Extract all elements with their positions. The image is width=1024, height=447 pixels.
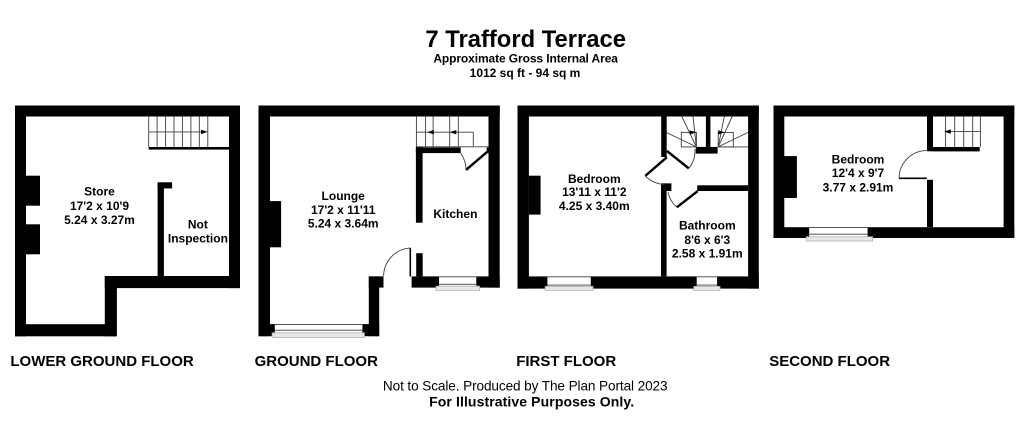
svg-text:Lounge: Lounge [322,189,366,203]
svg-text:17'2 x 10'9: 17'2 x 10'9 [70,199,129,213]
svg-text:Not to Scale. Produced by The: Not to Scale. Produced by The Plan Porta… [383,379,668,394]
svg-text:For Illustrative Purposes Only: For Illustrative Purposes Only. [429,393,634,409]
svg-text:5.24 x 3.64m: 5.24 x 3.64m [308,217,379,231]
svg-text:4.25 x 3.40m: 4.25 x 3.40m [559,199,630,213]
svg-text:SECOND FLOOR: SECOND FLOOR [769,353,890,370]
svg-text:12'4 x 9'7: 12'4 x 9'7 [832,166,885,180]
svg-text:13'11 x 11'2: 13'11 x 11'2 [562,185,627,199]
svg-text:Approximate Gross Internal Are: Approximate Gross Internal Area [433,52,618,66]
svg-text:3.77 x 2.91m: 3.77 x 2.91m [823,180,894,194]
svg-text:5.24 x 3.27m: 5.24 x 3.27m [64,213,135,227]
svg-text:2.58 x 1.91m: 2.58 x 1.91m [672,246,743,260]
svg-text:Inspection: Inspection [168,232,228,246]
svg-text:Bedroom: Bedroom [568,172,621,186]
svg-text:Bathroom: Bathroom [679,219,736,233]
svg-text:Store: Store [84,185,115,199]
svg-text:Bedroom: Bedroom [832,152,885,166]
svg-text:Kitchen: Kitchen [433,207,477,221]
svg-text:GROUND FLOOR: GROUND FLOOR [255,353,378,370]
svg-text:LOWER GROUND FLOOR: LOWER GROUND FLOOR [10,353,193,370]
svg-text:7 Trafford Terrace: 7 Trafford Terrace [425,26,626,53]
svg-text:FIRST FLOOR: FIRST FLOOR [516,353,616,370]
svg-text:17'2 x 11'11: 17'2 x 11'11 [311,203,376,217]
svg-text:1012 sq ft - 94 sq m: 1012 sq ft - 94 sq m [470,66,581,80]
svg-text:Not: Not [188,218,208,232]
svg-text:8'6 x 6'3: 8'6 x 6'3 [684,233,730,247]
